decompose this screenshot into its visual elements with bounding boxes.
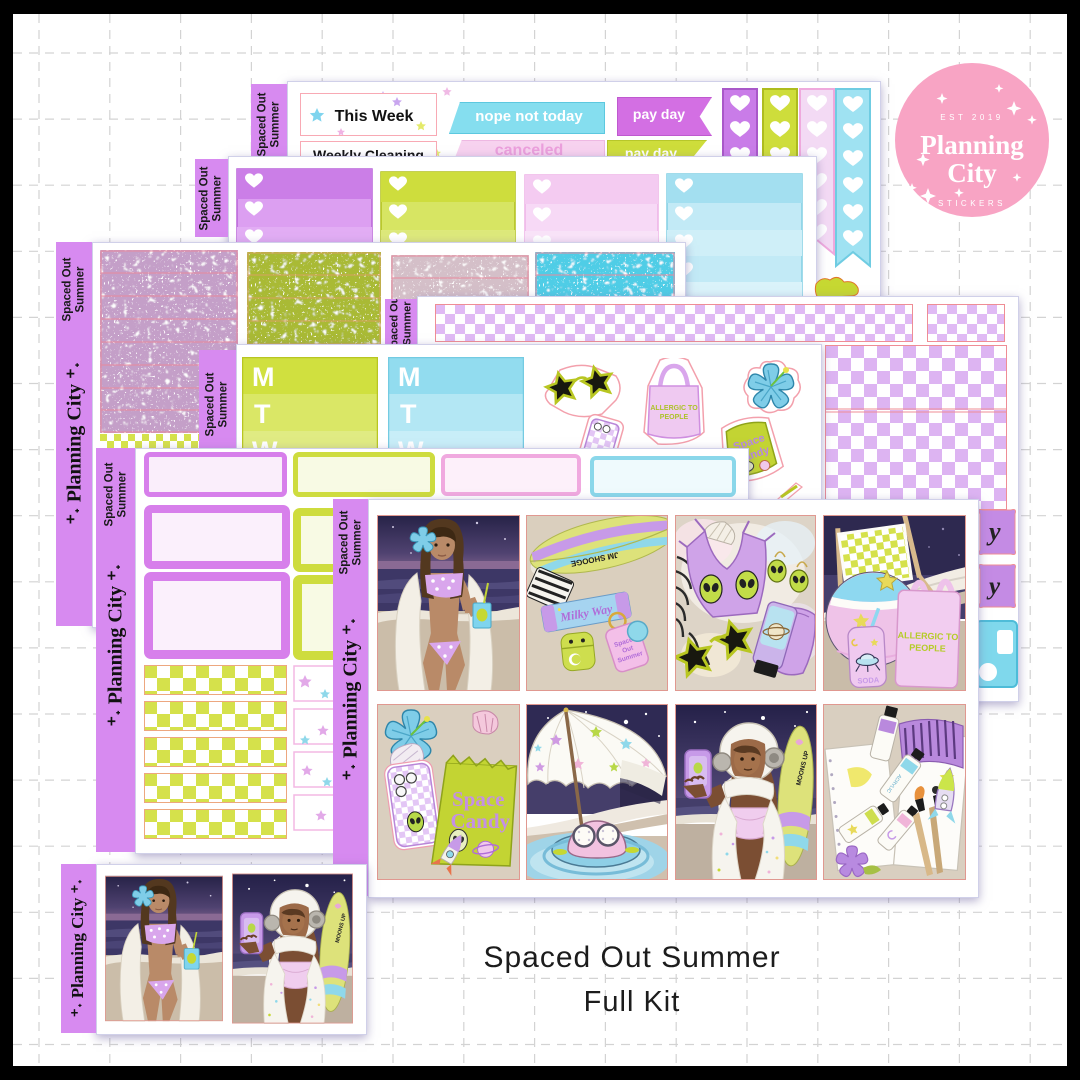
svg-text:Space: Space: [452, 787, 505, 811]
svg-text:T: T: [400, 399, 417, 429]
svg-text:PEOPLE: PEOPLE: [660, 414, 689, 421]
svg-text:ALLERGIC TO: ALLERGIC TO: [897, 630, 958, 642]
svg-text:EST 2019: EST 2019: [940, 113, 1003, 122]
svg-text:PEOPLE: PEOPLE: [909, 642, 946, 653]
svg-text:M: M: [398, 362, 421, 392]
svg-text:y: y: [986, 517, 1001, 546]
svg-text:STICKERS: STICKERS: [938, 199, 1006, 208]
svg-text:This Week: This Week: [335, 108, 414, 125]
svg-text:City: City: [947, 158, 997, 188]
svg-text:M: M: [252, 362, 275, 392]
svg-text:Planning: Planning: [920, 130, 1024, 160]
svg-text:ALLERGIC TO: ALLERGIC TO: [650, 405, 698, 412]
svg-text:T: T: [254, 399, 271, 429]
svg-text:SODA: SODA: [857, 675, 880, 685]
svg-text:y: y: [986, 573, 1001, 600]
